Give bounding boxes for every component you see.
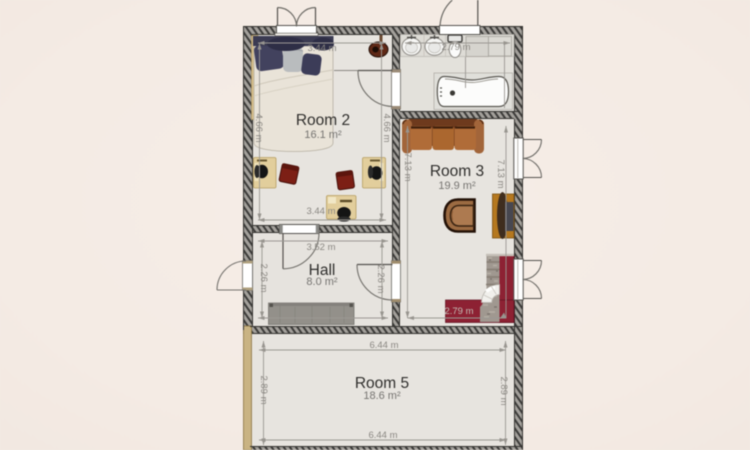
svg-text:8.0 m²: 8.0 m² [306, 276, 338, 288]
svg-text:6.44 m: 6.44 m [368, 430, 397, 441]
svg-text:4.66 m: 4.66 m [253, 113, 264, 142]
svg-text:3.44 m: 3.44 m [306, 206, 335, 217]
svg-text:19.9 m²: 19.9 m² [438, 180, 476, 192]
svg-text:3.44 m: 3.44 m [307, 43, 336, 54]
svg-text:Room 3: Room 3 [430, 163, 484, 180]
svg-text:2.26 m: 2.26 m [375, 264, 386, 293]
svg-text:2.79 m: 2.79 m [441, 42, 470, 53]
svg-text:7.13 m: 7.13 m [495, 159, 506, 188]
svg-text:4.66 m: 4.66 m [381, 113, 392, 142]
svg-text:16.1 m²: 16.1 m² [304, 129, 342, 141]
svg-text:7.13 m: 7.13 m [402, 152, 413, 181]
svg-text:2.89 m: 2.89 m [258, 375, 269, 404]
svg-text:2.26 m: 2.26 m [258, 263, 269, 292]
svg-text:Room 2: Room 2 [296, 112, 350, 129]
svg-text:3.52 m: 3.52 m [306, 242, 335, 253]
svg-text:2.79 m: 2.79 m [444, 306, 473, 317]
svg-text:18.6 m²: 18.6 m² [363, 390, 401, 402]
svg-text:2.89 m: 2.89 m [498, 376, 509, 405]
svg-text:6.44 m: 6.44 m [369, 340, 398, 351]
